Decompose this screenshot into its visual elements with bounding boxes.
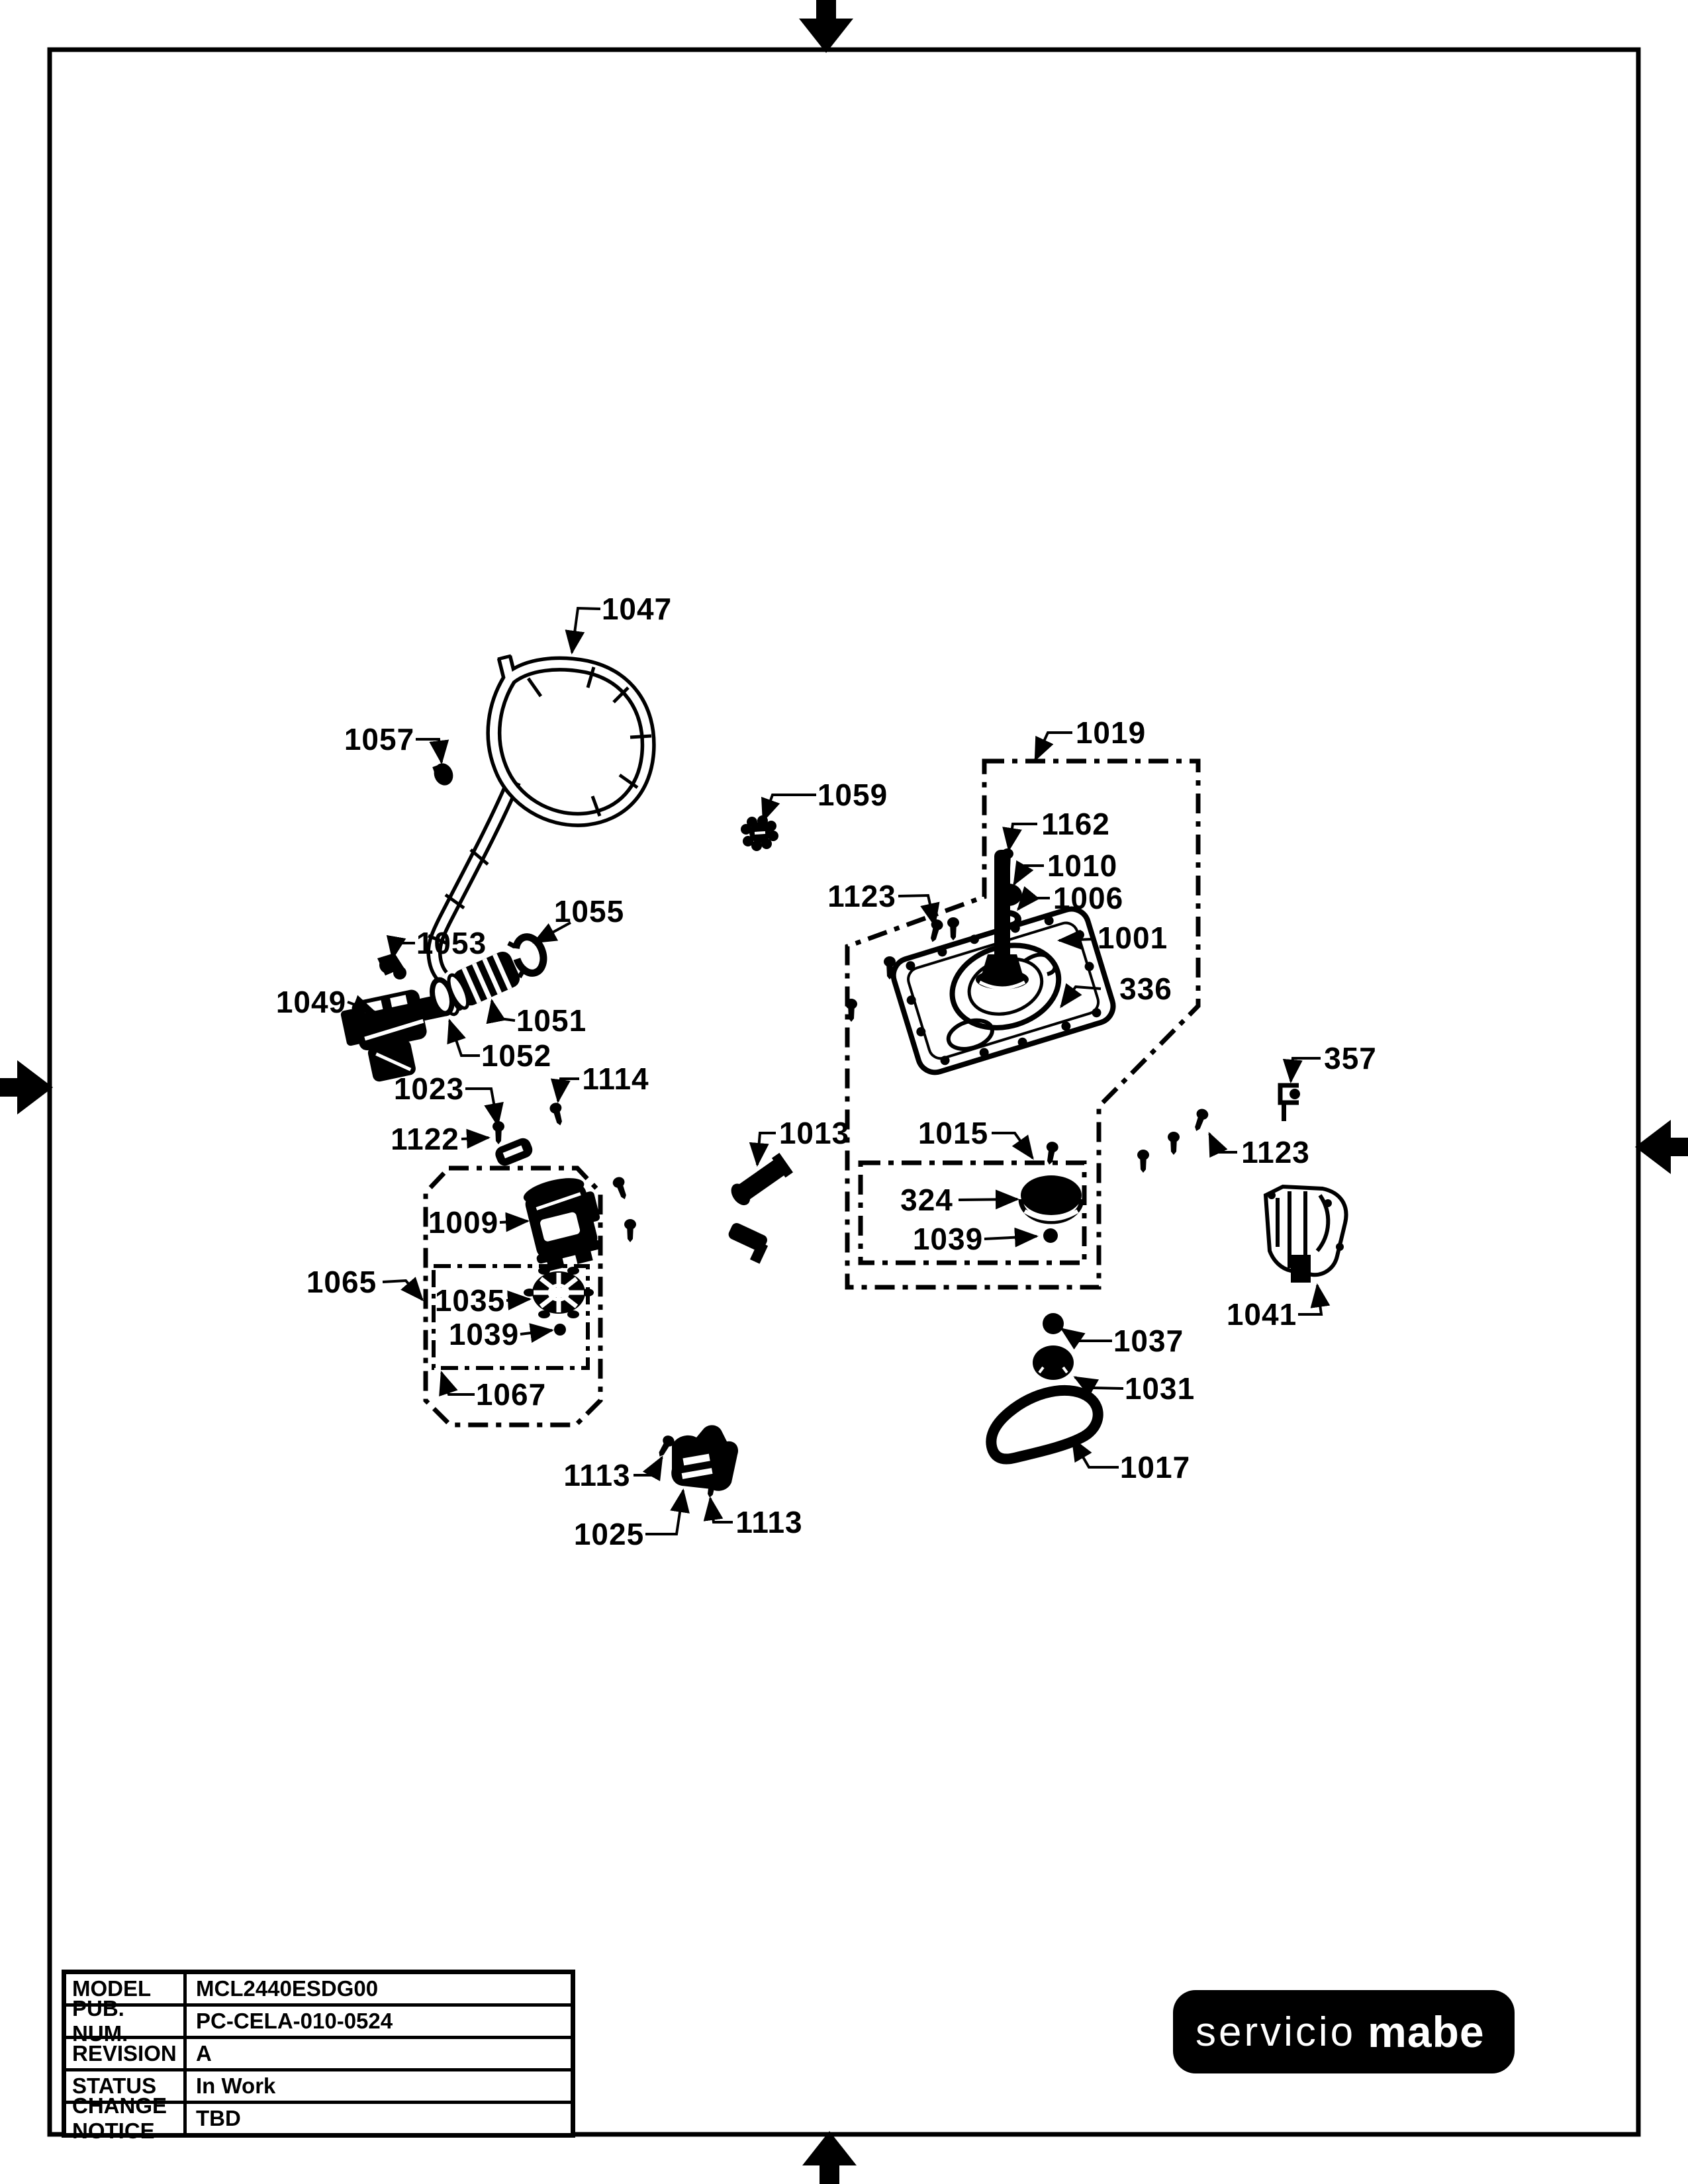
leader-line-1041	[1298, 1285, 1321, 1314]
leader-line-1052	[449, 1021, 480, 1056]
callout-336: 336	[1119, 972, 1172, 1006]
callout-1025: 1025	[574, 1517, 644, 1551]
title-block-table: MODEL MCL2440ESDG00 PUB. NUM. PC-CELA-01…	[62, 1970, 575, 2138]
screw-part-1039-pulley	[1043, 1228, 1058, 1243]
callout-357: 357	[1324, 1041, 1377, 1075]
leader-line-1035	[506, 1299, 530, 1300]
callout-324: 324	[900, 1183, 953, 1217]
leader-line-1013	[757, 1133, 776, 1165]
leader-line-1047	[572, 608, 600, 653]
bracket-part-1041	[1266, 1187, 1346, 1283]
leader-line-324	[959, 1199, 1017, 1200]
callout-1041: 1041	[1227, 1297, 1297, 1332]
leader-line-1113	[633, 1457, 662, 1475]
callout-1123: 1123	[827, 879, 896, 913]
leader-line-357	[1291, 1058, 1321, 1081]
leader-line-1051	[492, 1001, 515, 1021]
callout-labels: 1047105710591019116210101006100133611231…	[276, 592, 1377, 1551]
leader-line-1059	[763, 795, 816, 821]
leader-line-1006	[1018, 898, 1050, 909]
clip-part-357	[1280, 1085, 1300, 1121]
pulley-cap-part-324	[1021, 1175, 1082, 1222]
parts-diagram-page: 1047105710591019116210101006100133611231…	[0, 0, 1688, 2184]
nut-part-1059	[741, 815, 778, 851]
callout-1162: 1162	[1041, 807, 1110, 841]
callout-1017: 1017	[1120, 1450, 1190, 1484]
belt-part-1017	[991, 1390, 1098, 1459]
leader-line-1023	[465, 1089, 498, 1125]
leader-line-1065	[383, 1281, 422, 1300]
callout-1039: 1039	[449, 1317, 519, 1351]
registration-arrow-bottom-icon	[802, 2131, 857, 2184]
callout-1122: 1122	[391, 1122, 459, 1156]
callout-1051: 1051	[516, 1003, 586, 1038]
leader-line-1162	[1009, 824, 1037, 850]
leader-line-1019	[1035, 733, 1072, 760]
callout-1059: 1059	[818, 778, 888, 812]
callout-1065: 1065	[306, 1265, 377, 1299]
callout-1123: 1123	[1241, 1135, 1310, 1169]
servicio-mabe-logo: servicio mabe	[1173, 1990, 1515, 2073]
leader-line-1001	[1059, 939, 1094, 940]
callout-1113: 1113	[563, 1458, 630, 1492]
leader-line-1057	[416, 739, 442, 762]
callout-1019: 1019	[1076, 715, 1146, 750]
callout-1055: 1055	[554, 894, 624, 929]
callout-1035: 1035	[435, 1283, 505, 1318]
page-border	[50, 50, 1638, 2134]
callout-1047: 1047	[602, 592, 672, 626]
screw-part-1039-motor	[554, 1324, 566, 1336]
exploded-parts-diagram: 1047105710591019116210101006100133611231…	[0, 0, 1688, 2184]
callout-1114: 1114	[582, 1062, 649, 1096]
screw-part-1037	[1043, 1313, 1064, 1334]
leader-line-1031	[1075, 1377, 1123, 1388]
registration-arrow-top-icon	[799, 0, 853, 53]
callout-1113: 1113	[735, 1505, 802, 1539]
change-notice-value: TBD	[187, 2106, 241, 2131]
leader-line-1113	[710, 1498, 733, 1522]
fitting-part-lower	[722, 1221, 771, 1263]
callout-1039: 1039	[913, 1222, 983, 1256]
info-row-change-notice: CHANGE NOTICE TBD	[66, 2104, 571, 2133]
callout-1006: 1006	[1053, 881, 1123, 915]
leader-line-1039	[984, 1236, 1037, 1239]
callout-1010: 1010	[1047, 848, 1117, 883]
callout-1049: 1049	[276, 985, 346, 1019]
leader-line-1067	[442, 1373, 475, 1394]
leader-line-1015	[992, 1133, 1033, 1158]
callout-1057: 1057	[344, 722, 414, 756]
leader-line-1114	[558, 1079, 579, 1101]
logo-word-mabe: mabe	[1368, 2007, 1484, 2057]
info-row-pub-num: PUB. NUM. PC-CELA-010-0524	[66, 2007, 571, 2039]
revision-value: A	[187, 2041, 212, 2066]
model-value: MCL2440ESDG00	[187, 1976, 378, 2001]
callout-1001: 1001	[1098, 921, 1168, 955]
callout-1015: 1015	[918, 1116, 988, 1150]
leader-line-1010	[1014, 866, 1044, 884]
clip-part-1057	[431, 760, 456, 788]
revision-label: REVISION	[66, 2039, 187, 2068]
info-row-revision: REVISION A	[66, 2039, 571, 2071]
callout-1053: 1053	[416, 926, 487, 960]
pub-num-label: PUB. NUM.	[66, 2007, 187, 2036]
leader-line-1037	[1062, 1329, 1112, 1341]
callout-1067: 1067	[476, 1377, 546, 1412]
fitting-part-1013	[727, 1153, 793, 1209]
pub-num-value: PC-CELA-010-0524	[187, 2009, 393, 2034]
callout-1009: 1009	[428, 1205, 498, 1240]
registration-arrow-left-icon	[0, 1060, 53, 1115]
pulley-part-1031	[1033, 1345, 1074, 1380]
leader-line-1122	[461, 1138, 489, 1139]
callout-1023: 1023	[394, 1071, 464, 1106]
callout-1052: 1052	[481, 1038, 551, 1073]
callout-1013: 1013	[779, 1116, 849, 1150]
rotor-part-1035	[524, 1267, 594, 1318]
leader-line-1123	[1209, 1134, 1237, 1152]
callout-1037: 1037	[1113, 1324, 1184, 1358]
bracket-part-1025	[671, 1425, 738, 1490]
leader-line-1025	[645, 1490, 683, 1534]
registration-arrow-right-icon	[1635, 1120, 1688, 1174]
status-value: In Work	[187, 2073, 275, 2099]
leader-line-1039	[520, 1330, 552, 1334]
screw-part-1114	[549, 1101, 566, 1126]
leader-line-1009	[500, 1221, 528, 1222]
logo-word-servicio: servicio	[1196, 2009, 1356, 2056]
change-notice-label: CHANGE NOTICE	[66, 2104, 187, 2133]
callout-1031: 1031	[1125, 1371, 1195, 1406]
